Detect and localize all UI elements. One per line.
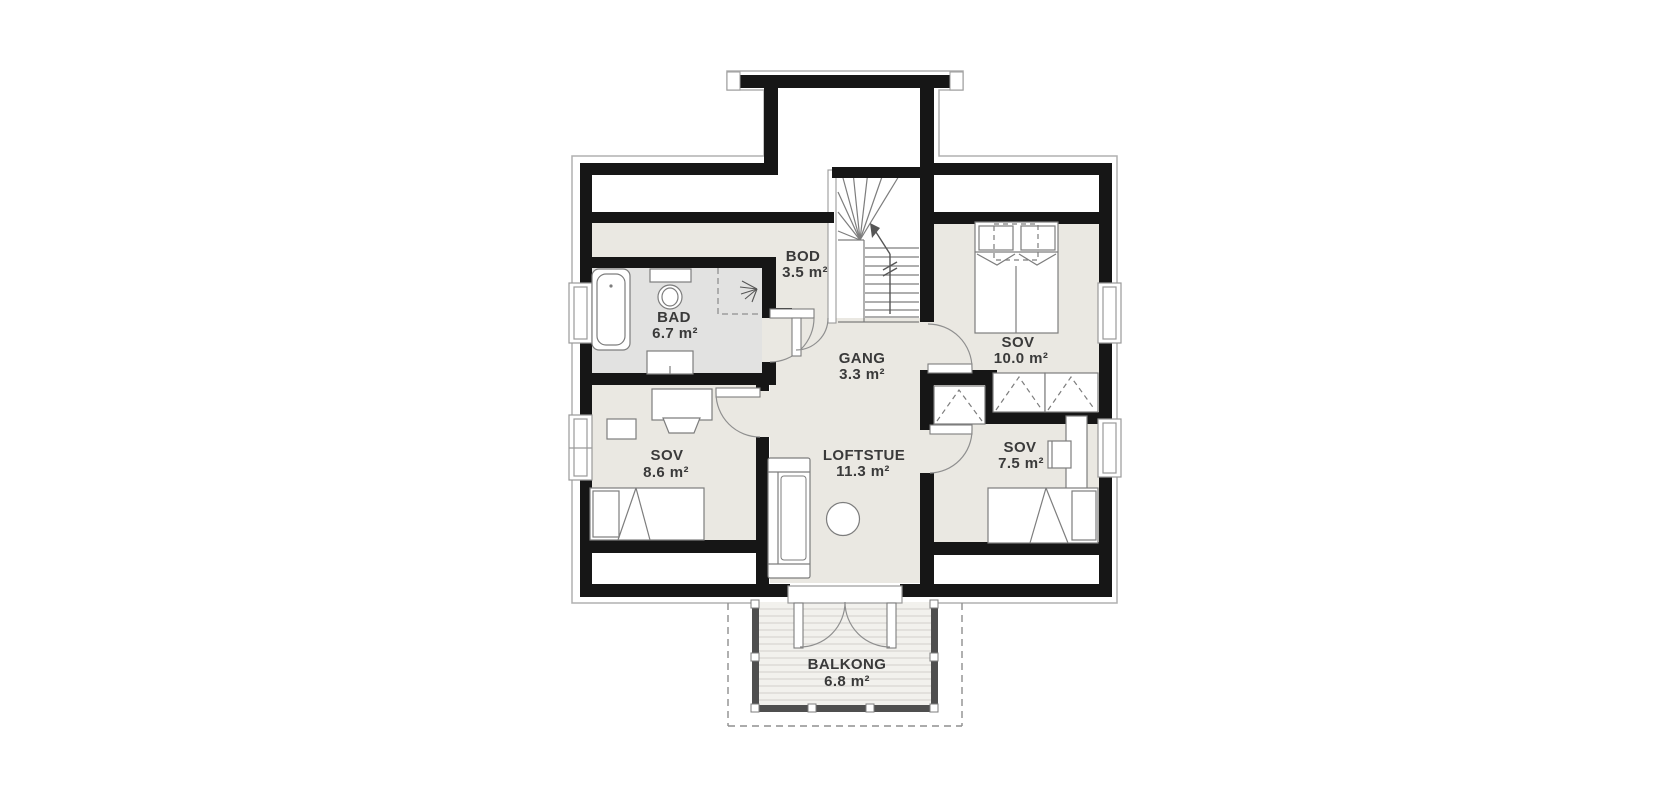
- bathtub: [592, 269, 630, 350]
- room-label-balkong-name: BALKONG: [808, 656, 887, 673]
- window-sov-10-inner: [1103, 287, 1116, 339]
- dormer-cap-end-right: [950, 72, 963, 90]
- wardrobes-sov-10: [993, 373, 1098, 412]
- wall-inner-top-left: [580, 212, 834, 223]
- sofa: [768, 458, 810, 578]
- floor-knee-strip: [592, 223, 776, 257]
- room-label-bod-area: 3.5 m²: [782, 264, 828, 281]
- floor-plan-canvas: BOD 3.5 m² BAD 6.7 m² GANG 3.3 m² SOV 10…: [0, 0, 1670, 800]
- wall-outer-top-right: [934, 163, 1100, 175]
- stair-side-half-wall: [828, 170, 836, 323]
- wall-dormer-right-stair: [920, 86, 934, 322]
- pillow-sov-7-5: [1072, 491, 1096, 540]
- stair-winder-treads: [838, 171, 902, 240]
- room-label-sov-10-area: 10.0 m²: [994, 350, 1049, 367]
- room-label-loftstue-name: LOFTSTUE: [823, 447, 905, 464]
- floor-doorway-bad: [762, 318, 776, 362]
- side-table-sov-8-6: [607, 419, 636, 439]
- wall-sov-7-5-bottom: [934, 542, 1100, 555]
- bed-sov-8-6: [590, 488, 704, 540]
- closet-sov-7-5: [934, 386, 985, 424]
- wall-loftstue-left: [756, 437, 769, 597]
- room-label-sov-8-6-name: SOV: [651, 447, 684, 464]
- wall-sov-7-5-left-upper: [920, 370, 934, 430]
- bathroom-vanity: [647, 351, 693, 374]
- staircase: [828, 170, 919, 323]
- wall-sov-7-5-left-lower: [920, 473, 934, 597]
- pillow-sov-10-left: [979, 226, 1013, 250]
- floor-doorway-sov-10: [920, 322, 934, 370]
- room-label-balkong-area: 6.8 m²: [824, 673, 870, 690]
- room-label-gang-area: 3.3 m²: [839, 366, 885, 383]
- stair-direction-arrow-icon: [870, 223, 897, 314]
- room-label-loftstue-area: 11.3 m²: [836, 463, 890, 480]
- floor-plan-drawing: BOD 3.5 m² BAD 6.7 m² GANG 3.3 m² SOV 10…: [0, 0, 1670, 800]
- room-label-bad-area: 6.7 m²: [652, 325, 698, 342]
- room-label-bad-name: BAD: [657, 309, 691, 326]
- wall-stair-top: [832, 167, 934, 178]
- dormer-cap-end-left: [727, 72, 740, 90]
- room-label-sov-7-5-area: 7.5 m²: [998, 455, 1044, 472]
- room-label-sov-10-name: SOV: [1002, 334, 1035, 351]
- window-sov-7-5-inner: [1103, 423, 1116, 473]
- window-bad-inner: [574, 287, 587, 339]
- wall-outer-top-left: [580, 163, 766, 175]
- wall-outer-right: [1099, 163, 1112, 597]
- wall-sov-8-6-bottom: [580, 540, 758, 553]
- wall-dormer-left: [764, 86, 778, 175]
- room-label-bod-name: BOD: [786, 248, 821, 265]
- room-label-sov-7-5-name: SOV: [1004, 439, 1037, 456]
- wall-bad-bottom: [580, 373, 770, 385]
- desk-chair-sov-8-6: [663, 418, 700, 433]
- bed-sov-7-5: [988, 488, 1098, 543]
- room-label-gang-name: GANG: [839, 350, 886, 367]
- floor-doorway-sov-8-6: [756, 391, 770, 437]
- stair-straight-treads: [838, 240, 919, 322]
- round-table: [827, 503, 860, 536]
- balcony-door-sill: [788, 586, 902, 603]
- pillow-sov-8-6: [593, 491, 619, 537]
- room-label-sov-8-6-area: 8.6 m²: [643, 464, 689, 481]
- bed-sov-10: [975, 222, 1058, 333]
- balcony-rail-bottom: [752, 705, 938, 712]
- floor-doorway-sov-7-5: [920, 430, 934, 473]
- wall-bad-top: [580, 257, 776, 268]
